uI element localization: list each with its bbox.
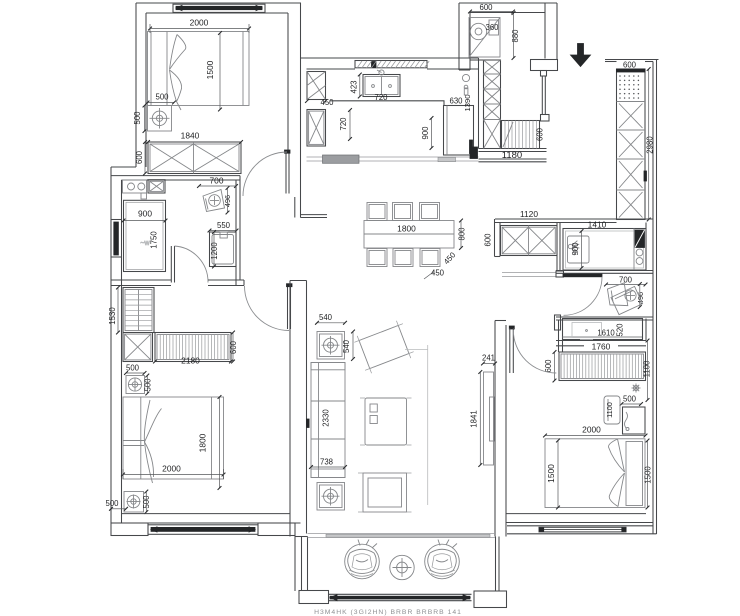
svg-text:360: 360: [485, 23, 499, 32]
svg-text:1500: 1500: [546, 464, 556, 483]
svg-text:1100: 1100: [605, 402, 614, 418]
svg-text:600: 600: [623, 61, 637, 70]
svg-text:900: 900: [138, 209, 152, 219]
svg-text:1800: 1800: [198, 433, 208, 452]
svg-text:700: 700: [619, 275, 633, 284]
svg-text:520: 520: [616, 323, 625, 337]
svg-text:700: 700: [210, 176, 224, 186]
svg-text:600: 600: [479, 3, 493, 12]
svg-text:720: 720: [339, 117, 348, 131]
svg-text:600: 600: [135, 150, 144, 164]
svg-text:1530: 1530: [108, 307, 117, 325]
svg-text:423: 423: [350, 80, 359, 93]
svg-text:241: 241: [482, 354, 495, 363]
svg-text:1840: 1840: [181, 131, 200, 141]
svg-text:500: 500: [126, 364, 140, 373]
svg-text:1200: 1200: [210, 242, 219, 260]
svg-text:2000: 2000: [162, 464, 181, 474]
svg-text:600: 600: [229, 340, 238, 354]
svg-text:H3M4HK (3GI2HN) BRBR BRBRB 141: H3M4HK (3GI2HN) BRBR BRBRB 141: [314, 609, 462, 616]
svg-text:600: 600: [484, 233, 493, 247]
svg-text:496: 496: [636, 292, 645, 304]
svg-text:450: 450: [431, 269, 445, 278]
svg-text:600: 600: [544, 359, 553, 373]
svg-text:1100: 1100: [643, 360, 652, 377]
svg-text:2330: 2330: [322, 409, 331, 427]
svg-text:1760: 1760: [592, 342, 611, 352]
svg-text:800: 800: [458, 227, 467, 241]
svg-text:880: 880: [511, 29, 520, 43]
svg-text:630: 630: [449, 97, 463, 106]
svg-text:600: 600: [536, 127, 545, 141]
svg-text:2000: 2000: [582, 425, 601, 435]
svg-text:1841: 1841: [470, 410, 479, 427]
svg-text:500: 500: [623, 395, 637, 404]
svg-text:500: 500: [155, 93, 169, 102]
svg-text:1180: 1180: [502, 150, 522, 161]
svg-text:1390: 1390: [463, 95, 472, 112]
svg-text:1750: 1750: [150, 231, 159, 249]
svg-text:1610: 1610: [597, 329, 615, 338]
svg-text:2000: 2000: [190, 18, 209, 28]
svg-text:500: 500: [144, 378, 153, 392]
svg-text:900: 900: [421, 126, 430, 140]
svg-text:1800: 1800: [397, 224, 416, 234]
svg-text:500: 500: [105, 499, 119, 508]
svg-text:2180: 2180: [181, 356, 200, 366]
svg-text:1500: 1500: [205, 60, 215, 79]
svg-text:1500: 1500: [644, 466, 653, 484]
svg-text:500: 500: [133, 111, 142, 125]
svg-text:738: 738: [320, 458, 333, 467]
svg-text:1120: 1120: [520, 209, 538, 219]
svg-text:900: 900: [571, 242, 580, 256]
svg-text:540: 540: [319, 313, 333, 322]
svg-text:550: 550: [217, 221, 231, 230]
svg-text:540: 540: [342, 339, 351, 353]
